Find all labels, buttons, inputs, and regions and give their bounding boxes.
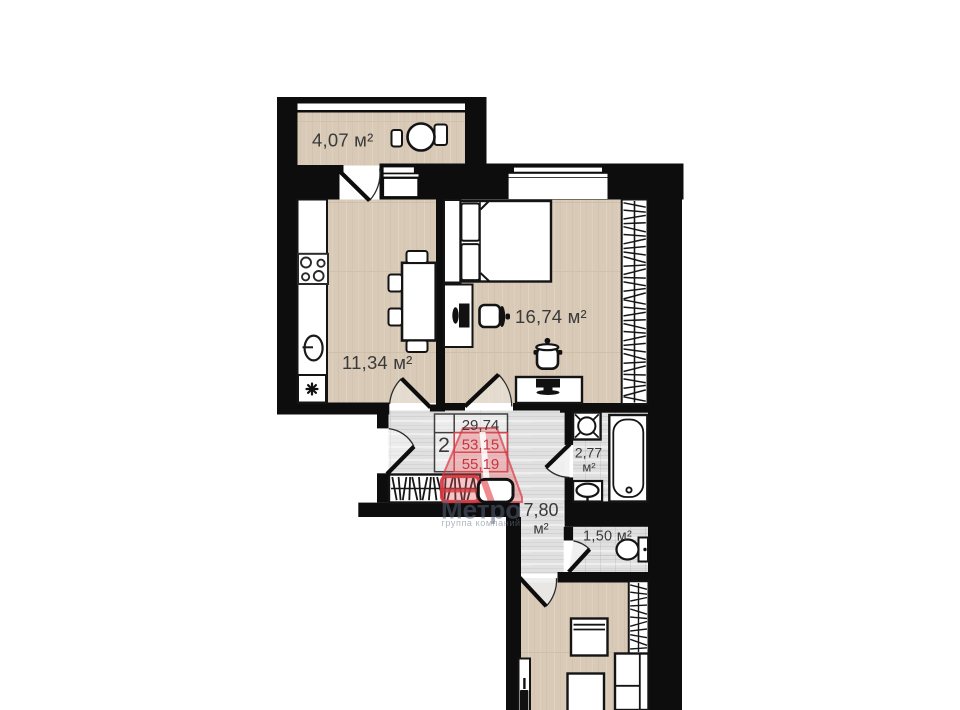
svg-text:53,15: 53,15 <box>462 437 500 454</box>
svg-text:4,07 м²: 4,07 м² <box>312 130 373 151</box>
svg-text:2: 2 <box>438 433 450 457</box>
svg-text:7,80: 7,80 <box>523 500 558 520</box>
svg-text:55,19: 55,19 <box>462 456 500 473</box>
svg-text:группа компаний: группа компаний <box>442 518 521 528</box>
svg-text:11,34 м²: 11,34 м² <box>342 352 413 373</box>
svg-text:1,50 м²: 1,50 м² <box>583 529 632 545</box>
svg-text:29,74: 29,74 <box>462 417 500 434</box>
svg-text:2,77: 2,77 <box>575 445 602 461</box>
svg-text:м²: м² <box>582 460 596 475</box>
svg-text:16,74 м²: 16,74 м² <box>515 306 587 327</box>
svg-text:м²: м² <box>533 521 548 538</box>
